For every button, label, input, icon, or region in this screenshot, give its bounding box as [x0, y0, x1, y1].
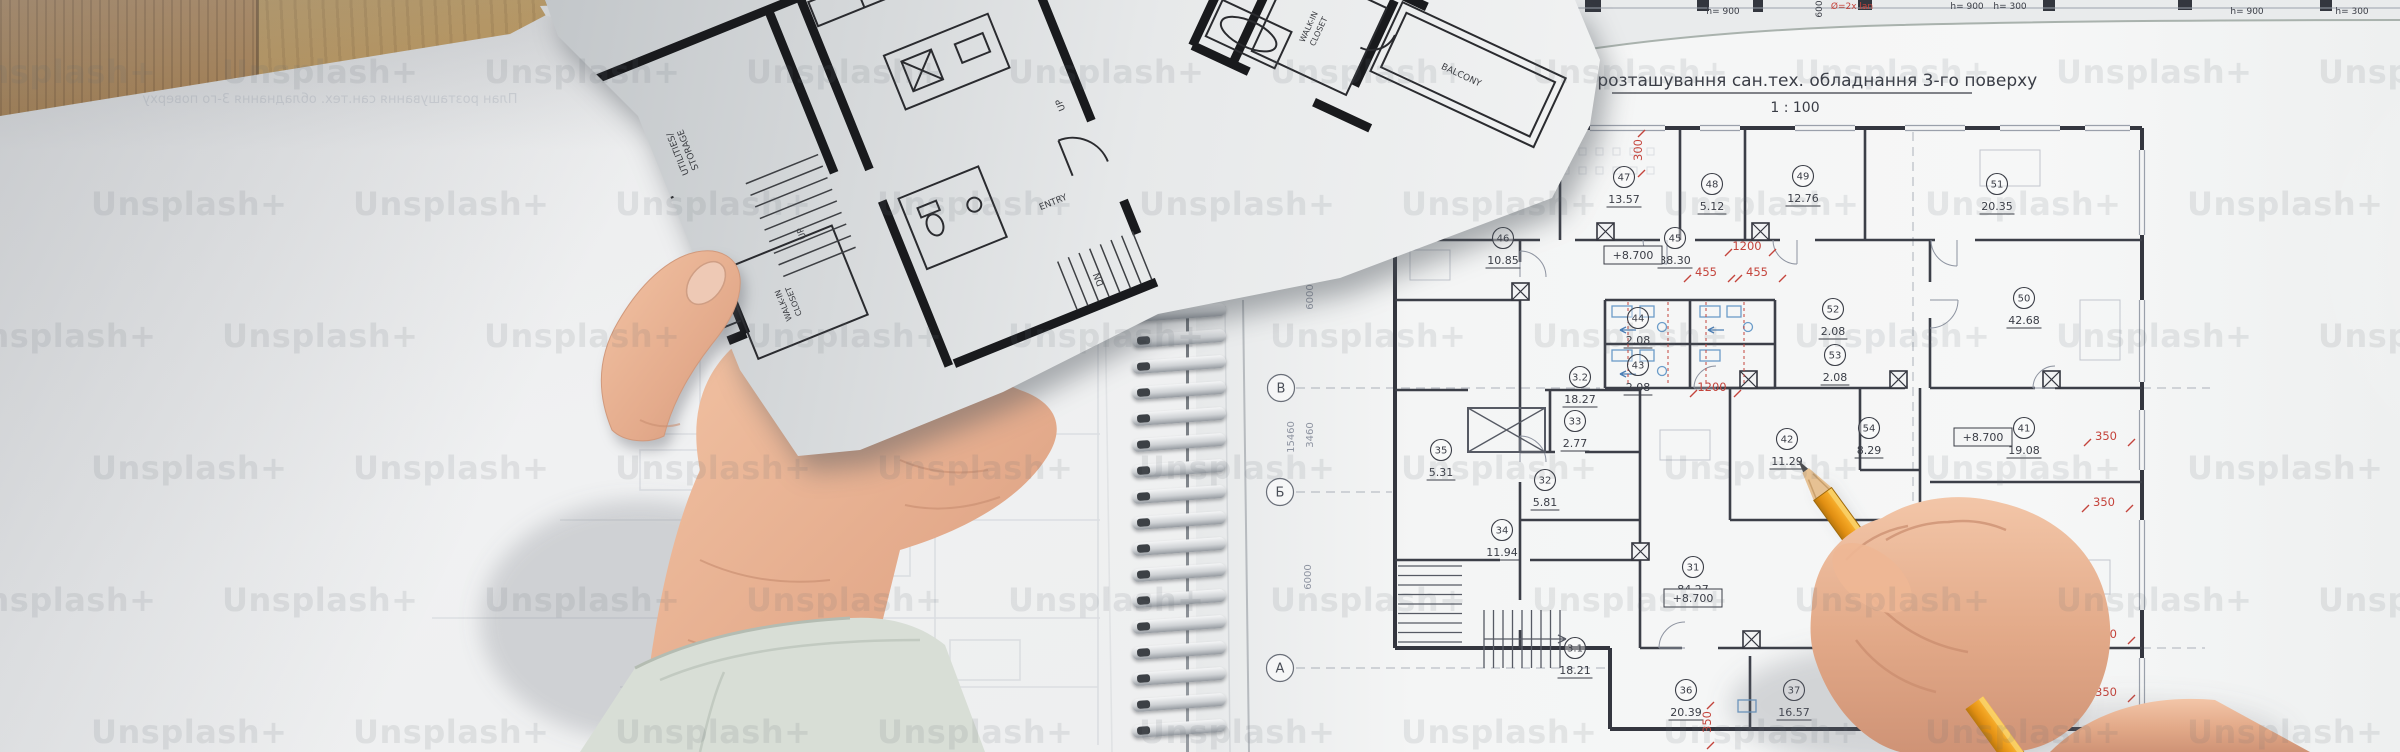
- right-forearm: [2050, 699, 2310, 752]
- blueprint-desk-photo: План розташування сан.тех. обладнання 3-…: [0, 0, 2400, 752]
- right-fist: [1811, 497, 2111, 752]
- right-hand-and-pencil: [0, 0, 2400, 752]
